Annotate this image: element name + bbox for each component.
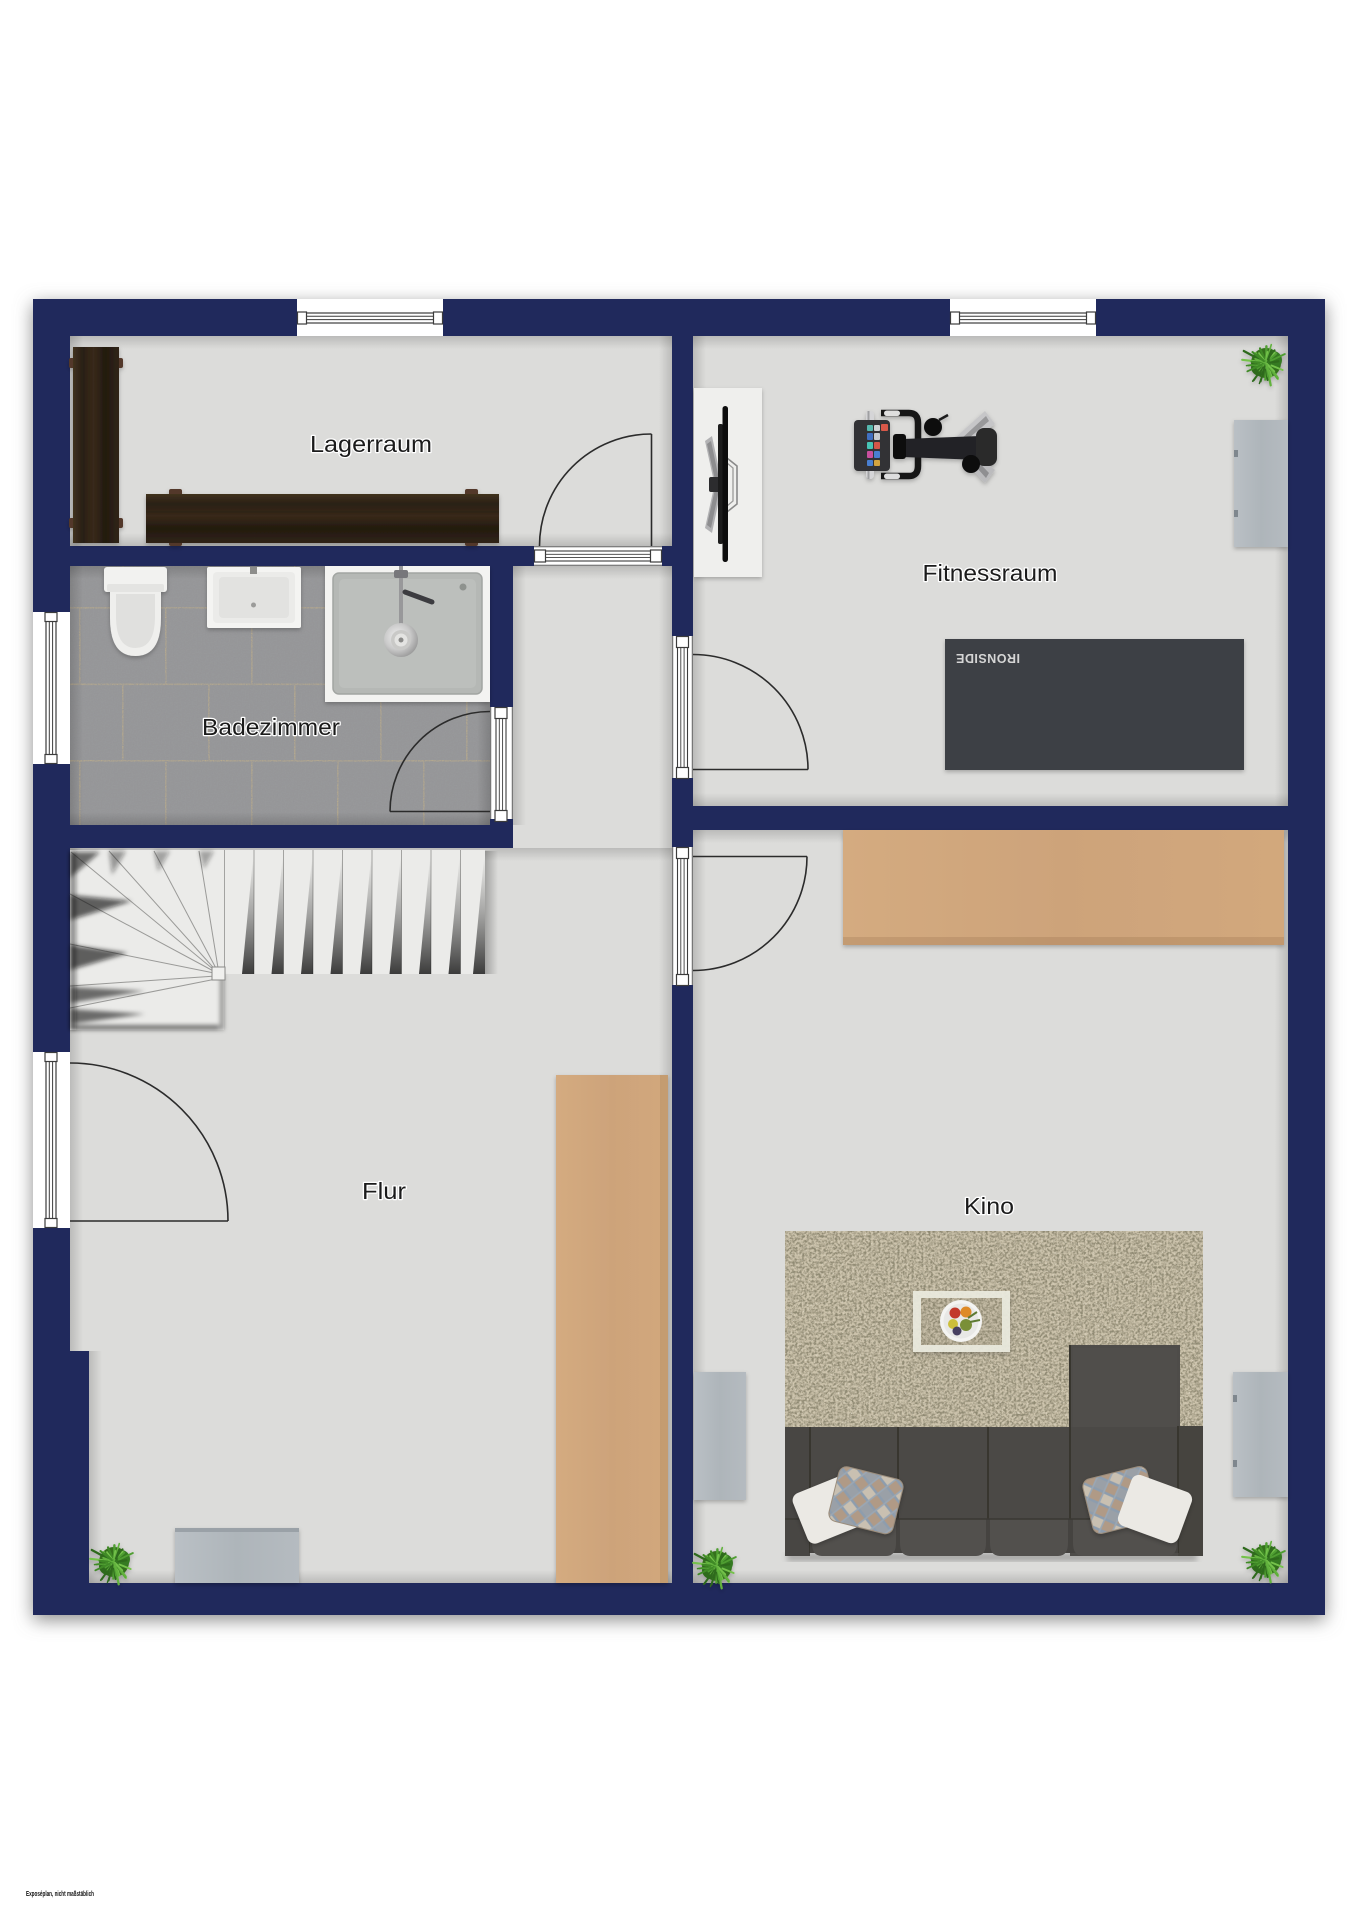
- svg-text:Lagerraum: Lagerraum: [310, 431, 432, 457]
- svg-text:Fitnessraum: Fitnessraum: [923, 560, 1058, 586]
- svg-text:Badezimmer: Badezimmer: [202, 714, 340, 740]
- svg-text:Flur: Flur: [362, 1178, 406, 1204]
- svg-text:Kino: Kino: [964, 1193, 1014, 1219]
- svg-text:Exposéplan, nicht maßstäblich: Exposéplan, nicht maßstäblich: [26, 1889, 94, 1898]
- svg-text:IRONSIDE: IRONSIDE: [956, 651, 1020, 665]
